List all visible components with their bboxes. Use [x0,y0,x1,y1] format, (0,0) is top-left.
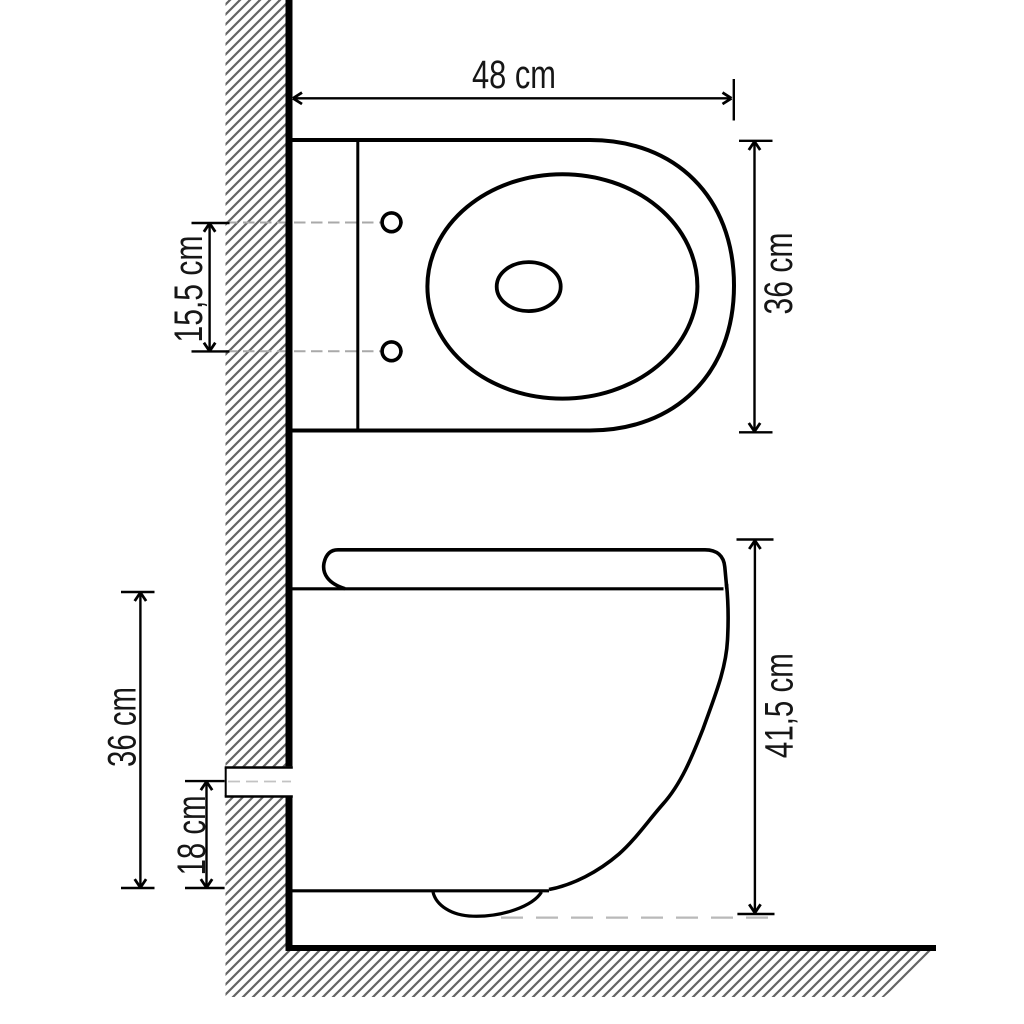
svg-text:18 cm: 18 cm [170,795,214,875]
svg-text:41,5 cm: 41,5 cm [757,653,801,758]
svg-text:36 cm: 36 cm [101,687,145,767]
svg-text:48 cm: 48 cm [472,53,556,97]
svg-text:15,5 cm: 15,5 cm [167,236,211,343]
svg-text:36 cm: 36 cm [757,233,801,315]
